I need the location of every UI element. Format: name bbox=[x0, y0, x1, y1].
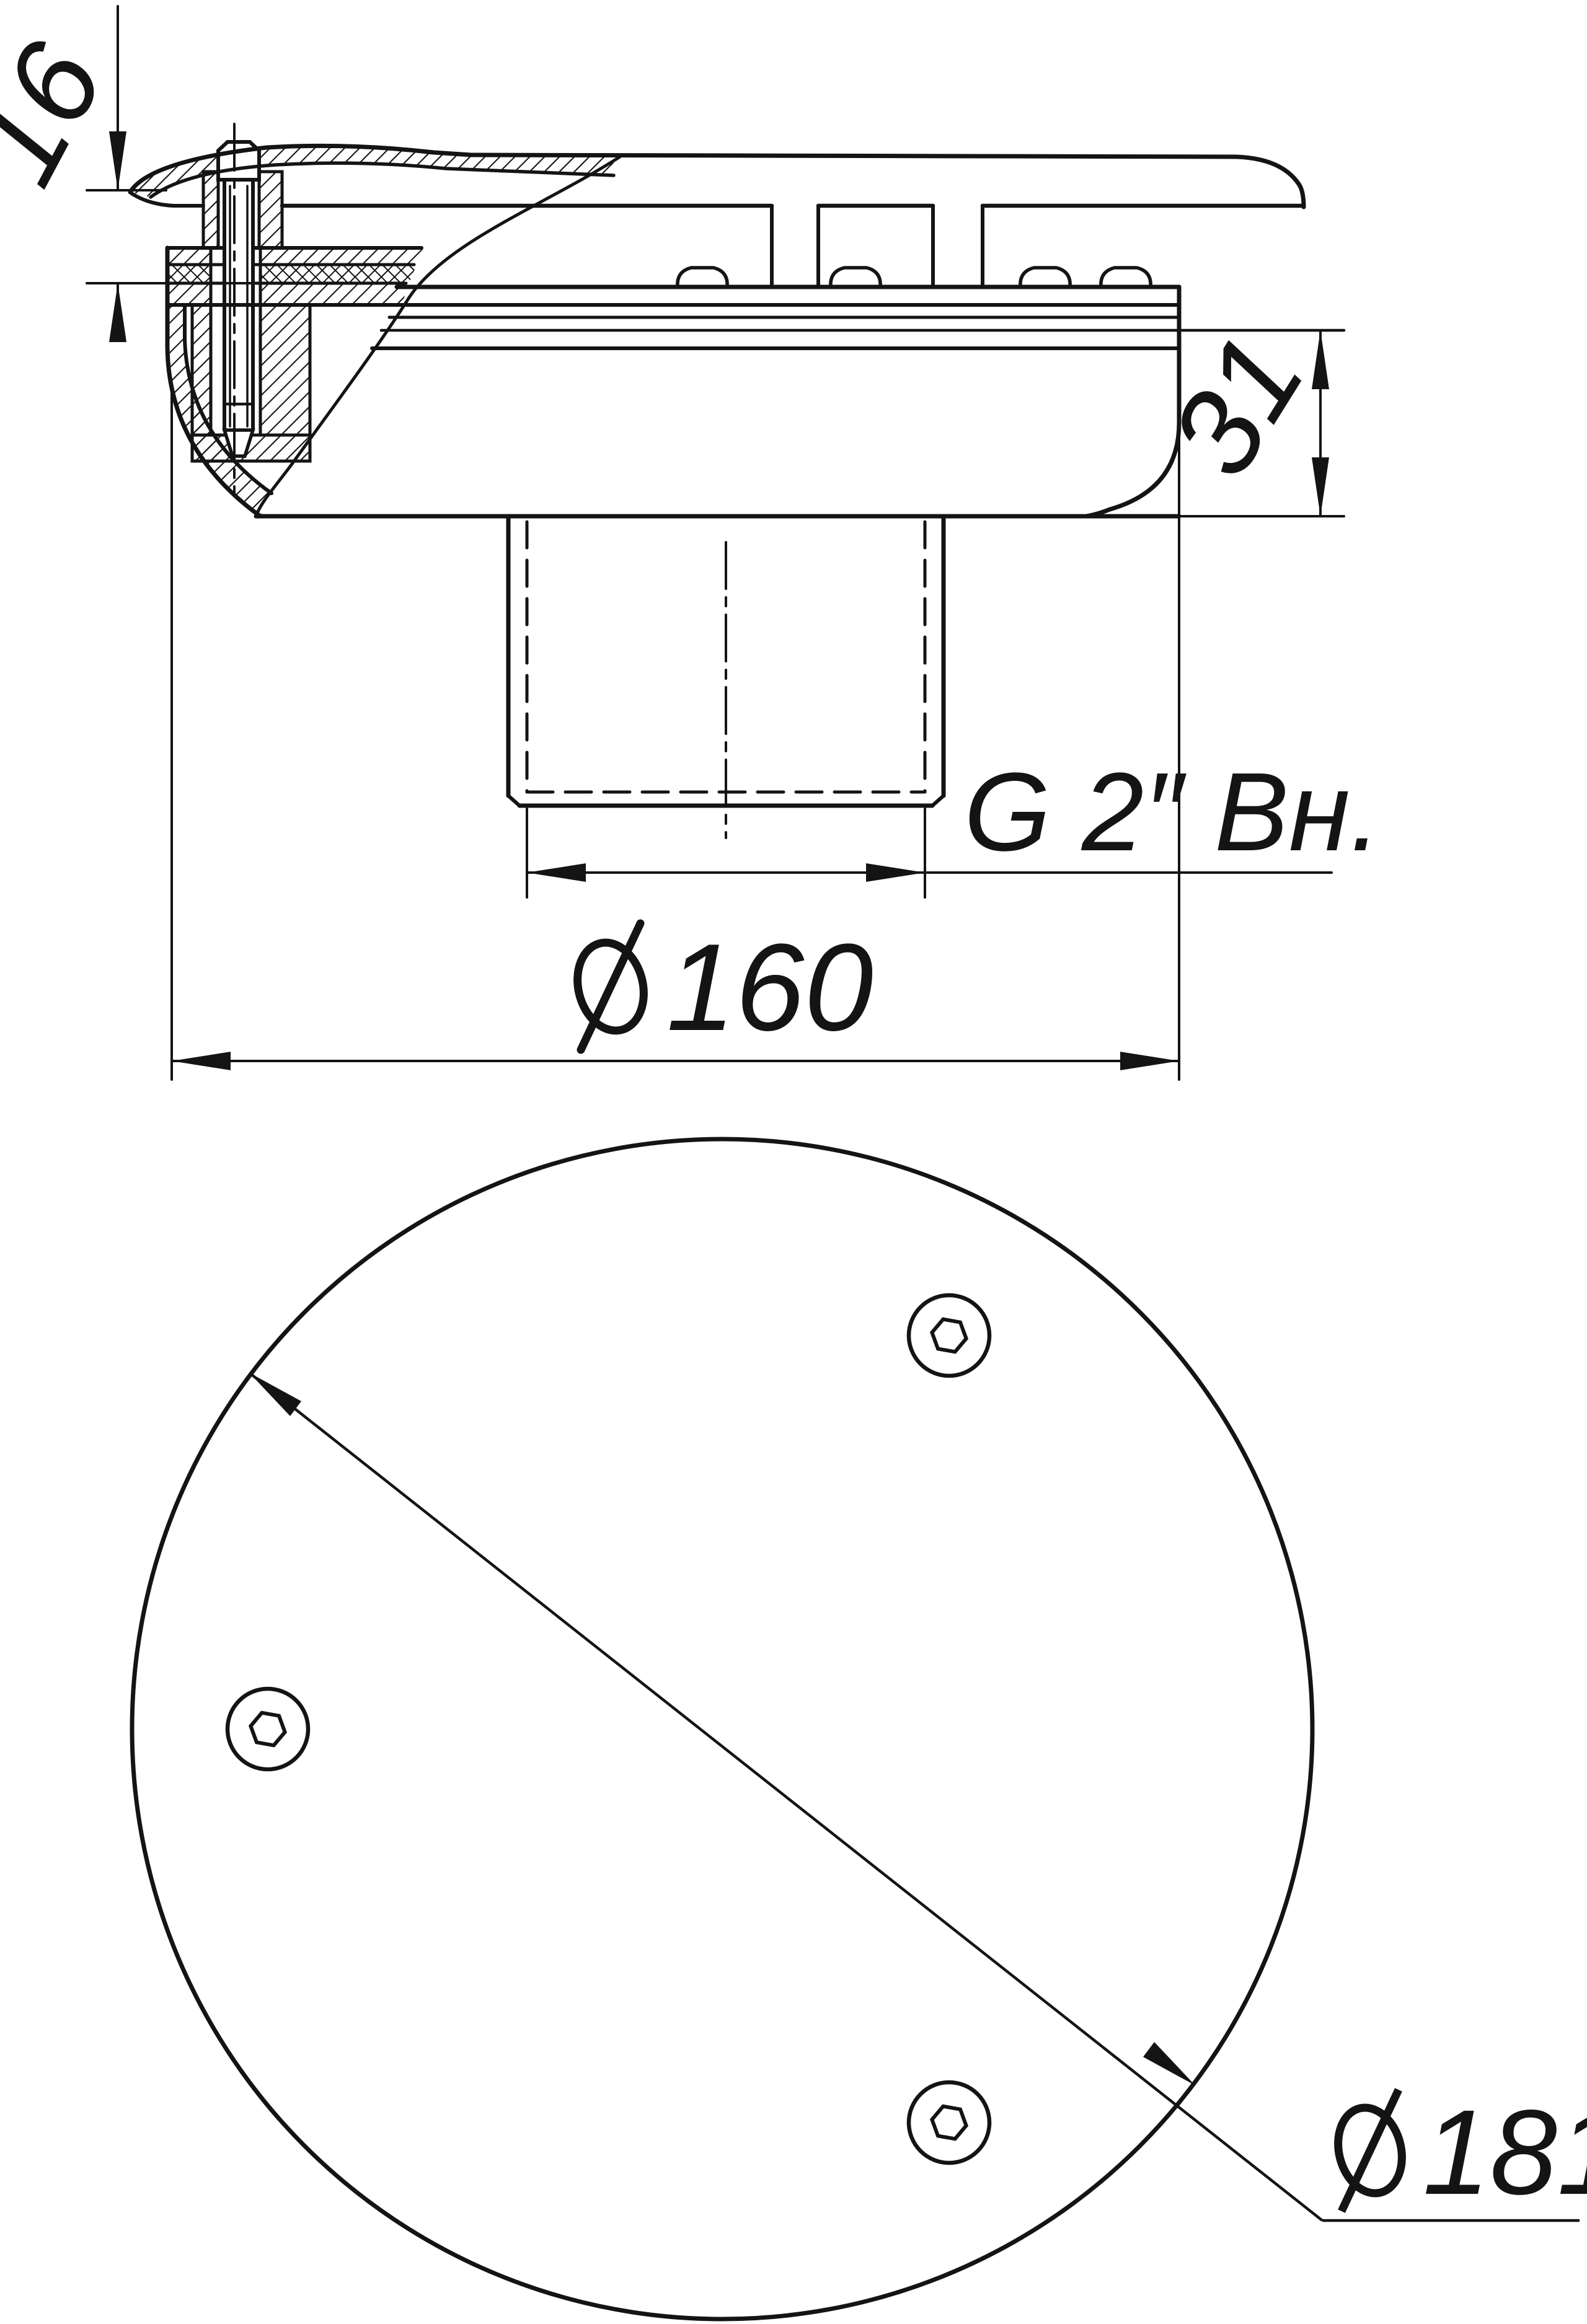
arrowhead bbox=[249, 1373, 301, 1416]
hex-socket-icon bbox=[932, 2106, 966, 2139]
screw-bottom bbox=[909, 2082, 989, 2163]
bottom-view: 181 bbox=[132, 1139, 1587, 2319]
hex-socket-icon bbox=[250, 1713, 285, 1746]
arrowhead bbox=[1143, 2042, 1195, 2085]
dim-height bbox=[1312, 330, 1329, 516]
rim-nub-2 bbox=[831, 268, 880, 287]
arrowhead bbox=[527, 863, 586, 882]
mounting-screw-section bbox=[218, 142, 259, 456]
screw-top-right bbox=[909, 1295, 989, 1376]
pipe-socket bbox=[508, 516, 944, 838]
arrowhead bbox=[1312, 457, 1329, 516]
drawing-sheet: 16 31 G 2″ Вн. 160 bbox=[0, 0, 1587, 2324]
rim-nub-1 bbox=[678, 268, 727, 287]
flange-gasket-section bbox=[167, 248, 423, 305]
section-view: 16 31 G 2″ Вн. 160 bbox=[0, 6, 1381, 1080]
dim-height-label: 31 bbox=[1144, 313, 1330, 498]
screw-left bbox=[228, 1689, 308, 1769]
arrowhead bbox=[109, 131, 126, 190]
dim-cover-diameter bbox=[249, 1373, 1580, 2221]
rim-nub-3 bbox=[1020, 268, 1070, 287]
arrowhead bbox=[866, 863, 925, 882]
dim-cover-diameter-label: 181 bbox=[1423, 2085, 1587, 2220]
arrowhead bbox=[109, 283, 126, 342]
dim-thread-label: G 2″ Вн. bbox=[964, 750, 1381, 874]
rim-nub-4 bbox=[1101, 268, 1151, 287]
dim-thickness-label: 16 bbox=[0, 22, 129, 205]
arrowhead bbox=[172, 1052, 231, 1070]
diameter-symbol-icon bbox=[1330, 2090, 1411, 2211]
dim-body-diameter-label: 160 bbox=[666, 918, 873, 1057]
engineering-drawing: 16 31 G 2″ Вн. 160 bbox=[0, 0, 1587, 2324]
cover-left-tip bbox=[131, 193, 203, 206]
diameter-symbol-icon bbox=[568, 923, 653, 1050]
arrowhead bbox=[1120, 1052, 1179, 1070]
hex-socket-icon bbox=[932, 1319, 966, 1352]
